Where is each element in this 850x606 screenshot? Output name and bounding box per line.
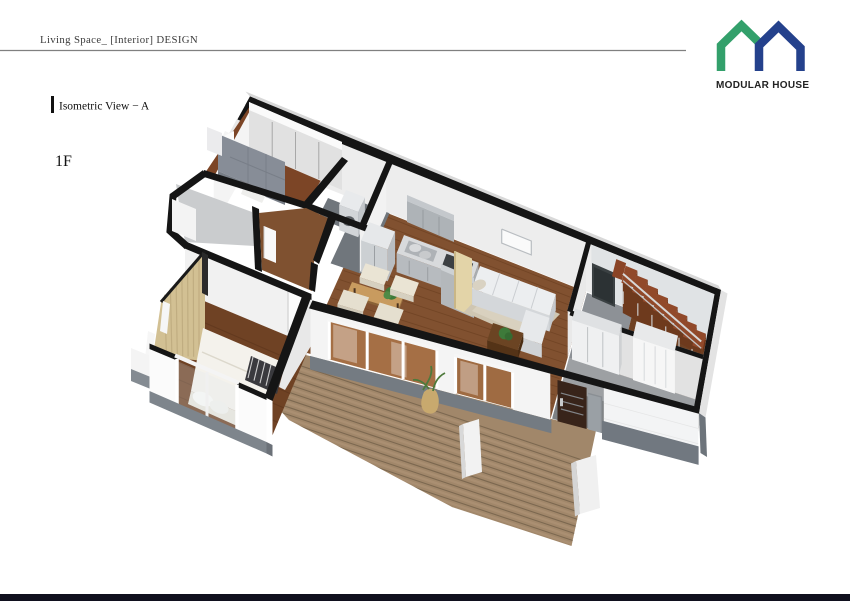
svg-text:1F: 1F <box>55 153 72 170</box>
svg-text:Isometric View − A: Isometric View − A <box>59 101 150 113</box>
svg-text:MODULAR HOUSE: MODULAR HOUSE <box>716 80 809 91</box>
svg-text:Living Space_ [Interior] DESIG: Living Space_ [Interior] DESIGN <box>40 34 198 46</box>
